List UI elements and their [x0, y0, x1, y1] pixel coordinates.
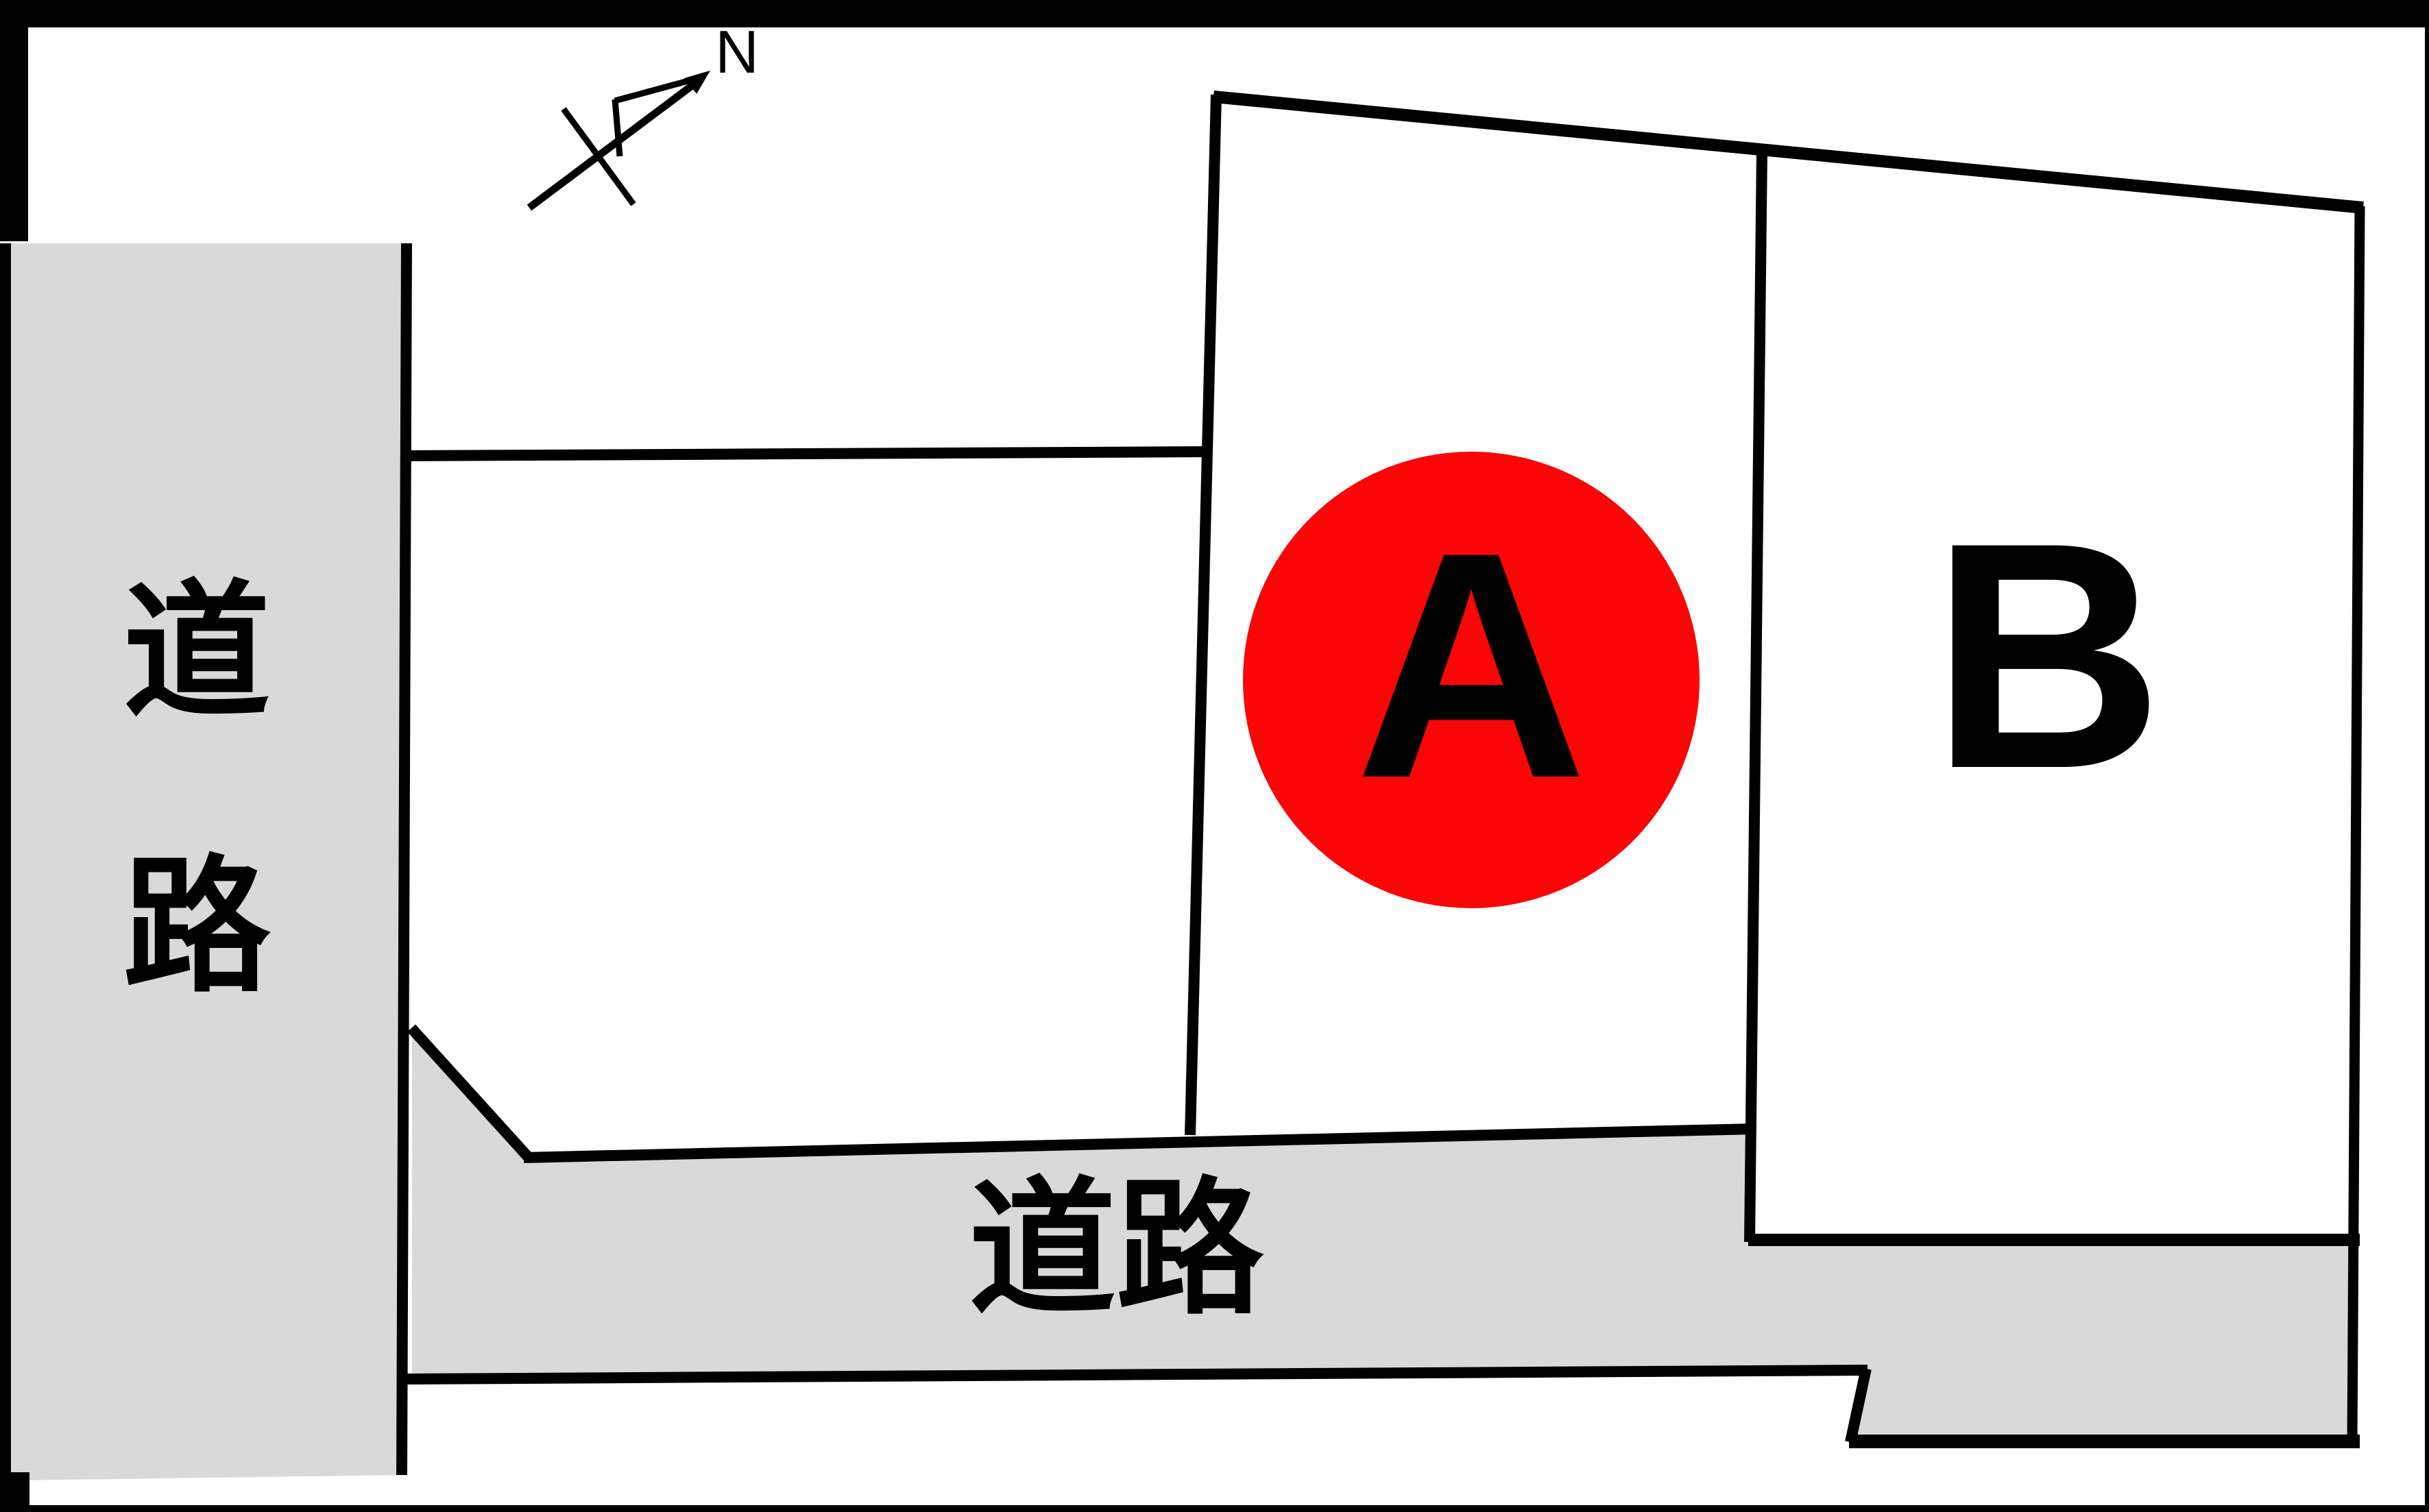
compass-north-label: N [715, 18, 759, 86]
road-left-label-char-1: 道 [123, 570, 271, 735]
road-left-label-char-2: 路 [123, 844, 271, 1010]
left-plot-top-edge [404, 452, 1208, 456]
plot-a-label: A [1355, 485, 1587, 845]
road-left-bottom-corner [0, 1472, 29, 1512]
plot-map-canvas: N A B 道 路 道路 [0, 0, 2429, 1512]
land-plot-diagram: N A B 道 路 道路 [0, 0, 2429, 1512]
frame-top-bar [0, 0, 2429, 27]
frame-right-line [2425, 0, 2429, 1512]
road-left-outer-stroke [0, 243, 11, 1480]
frame-left-bar [0, 0, 28, 241]
plot-a-marker: A [1243, 452, 1700, 908]
frame-bottom-line [0, 1505, 2429, 1512]
plot-b-label: B [1931, 476, 2163, 836]
road-left-inner-stroke [402, 243, 407, 1475]
road-bottom-label: 道路 [969, 1167, 1264, 1332]
